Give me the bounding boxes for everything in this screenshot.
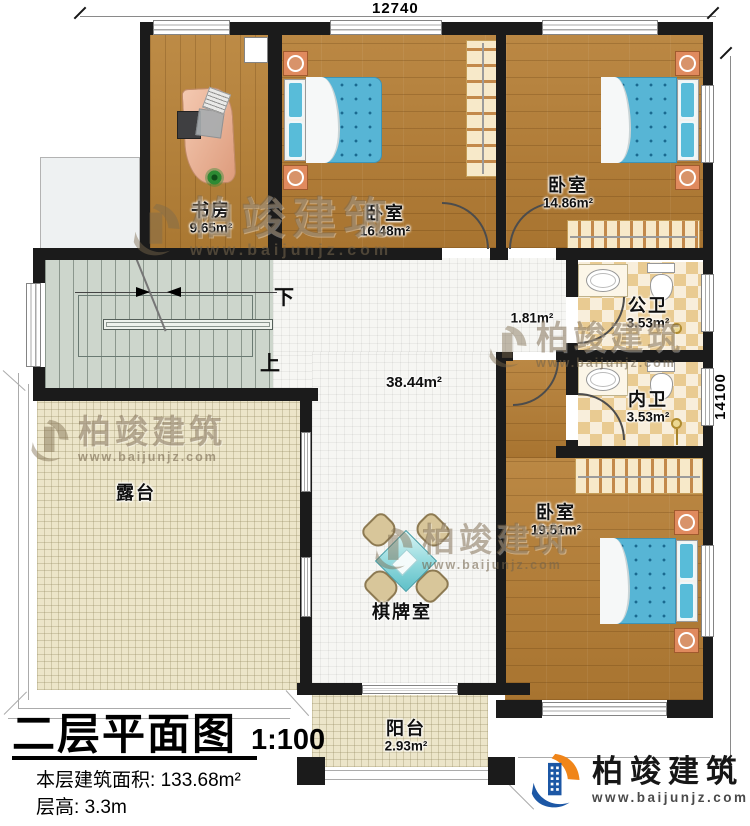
window bbox=[701, 274, 714, 332]
eave-line bbox=[18, 373, 19, 709]
floor-area-text: 本层建筑面积: 133.68m² bbox=[36, 765, 241, 792]
page-title: 二层平面图 bbox=[12, 711, 237, 759]
stair-rail bbox=[103, 319, 273, 330]
corridor-area-label: 1.81m² bbox=[511, 312, 554, 327]
stairs-up-label: 上 bbox=[260, 347, 280, 376]
title-block: 二层平面图1:100 bbox=[12, 700, 325, 762]
window bbox=[330, 20, 442, 35]
brand-url: www.baijunjz.com bbox=[592, 790, 749, 805]
bedroom3-wall bbox=[496, 700, 542, 718]
brand-name: 柏竣建筑 bbox=[592, 756, 749, 787]
wardrobe-icon bbox=[466, 40, 497, 177]
partition-wall bbox=[496, 35, 506, 248]
plant-icon bbox=[205, 168, 224, 187]
toilet-tank bbox=[647, 263, 675, 273]
balcony-parapet-line bbox=[325, 779, 488, 780]
nightstand-icon bbox=[675, 51, 700, 76]
lower-roof bbox=[40, 157, 140, 255]
bath-wall bbox=[556, 446, 712, 458]
sink-icon bbox=[586, 368, 620, 391]
drawing-scale: 1:100 bbox=[251, 724, 325, 756]
bedroom3-wall bbox=[496, 352, 506, 690]
nightstand-icon bbox=[674, 510, 699, 535]
wardrobe-icon bbox=[575, 458, 703, 494]
nightstand-icon bbox=[283, 51, 308, 76]
interior-wall bbox=[556, 248, 712, 260]
eave-line bbox=[3, 370, 26, 391]
floor-drain-icon bbox=[671, 323, 682, 334]
toilet-tank bbox=[647, 362, 675, 372]
interior-wall bbox=[33, 248, 442, 260]
stairwell-wall bbox=[33, 250, 45, 283]
terrace-wall bbox=[33, 388, 318, 401]
pillow-icon bbox=[287, 81, 304, 119]
exterior-wall-left bbox=[140, 22, 150, 258]
right-dimension-label: 14100 bbox=[712, 373, 729, 420]
pillow-icon bbox=[679, 121, 696, 159]
balcony-label: 阳台 2.93m² bbox=[385, 720, 428, 755]
nightstand-icon bbox=[283, 165, 308, 190]
floor-plan: 12740 14100 bbox=[0, 0, 750, 826]
interior-wall bbox=[490, 248, 508, 260]
dimension-tick bbox=[707, 7, 720, 20]
drain-stem bbox=[676, 429, 678, 445]
top-dimension-label: 12740 bbox=[372, 0, 419, 17]
window bbox=[542, 20, 658, 35]
study-label: 书房 9.65m² bbox=[190, 202, 233, 237]
brand-logo: 柏竣建筑 www.baijunjz.com bbox=[530, 750, 749, 810]
window bbox=[542, 702, 667, 716]
hall-floor bbox=[273, 258, 566, 352]
stair-arrow bbox=[167, 287, 181, 297]
window bbox=[153, 20, 230, 35]
game-room-floor bbox=[312, 352, 496, 683]
bath-wall bbox=[566, 258, 578, 297]
hall-area-label: 38.44m² bbox=[386, 375, 442, 392]
window bbox=[301, 557, 311, 617]
sink-icon bbox=[586, 269, 620, 292]
bedroom1-label: 卧室 16.48m² bbox=[360, 205, 410, 240]
floor-drain-icon bbox=[671, 418, 682, 429]
sliding-door bbox=[362, 685, 458, 694]
game-room-wall bbox=[297, 683, 362, 695]
brand-logo-icon bbox=[530, 750, 584, 810]
eave-line bbox=[28, 384, 29, 700]
study-door-niche bbox=[244, 37, 268, 63]
pillow-icon bbox=[287, 121, 304, 159]
bedroom3-wall bbox=[667, 700, 713, 718]
window bbox=[701, 368, 714, 426]
pillow-icon bbox=[679, 81, 696, 119]
game-room-label: 棋牌室 bbox=[372, 603, 432, 623]
partition-wall bbox=[268, 35, 282, 248]
terrace-label: 露台 bbox=[116, 484, 156, 504]
bedroom2-label: 卧室 14.86m² bbox=[543, 177, 593, 212]
bedroom3-label: 卧室 19.51m² bbox=[531, 504, 581, 539]
game-room-wall bbox=[458, 683, 530, 695]
title-underline bbox=[12, 756, 257, 760]
public-bath-label: 公卫 3.53m² bbox=[627, 297, 670, 332]
right-dimension-line bbox=[730, 56, 731, 768]
bedroom3-wall bbox=[558, 352, 578, 361]
balcony-pier bbox=[488, 757, 515, 785]
private-bath-label: 内卫 3.53m² bbox=[627, 391, 670, 426]
pillow-icon bbox=[678, 582, 695, 620]
nightstand-icon bbox=[675, 165, 700, 190]
window bbox=[301, 432, 311, 492]
stair-arrow bbox=[136, 287, 150, 297]
stairs-down-label: 下 bbox=[274, 281, 294, 310]
pillow-icon bbox=[678, 542, 695, 580]
floor-height-text: 层高: 3.3m bbox=[36, 792, 127, 819]
window bbox=[701, 85, 714, 163]
nightstand-icon bbox=[674, 628, 699, 653]
bath-wall bbox=[566, 362, 578, 395]
terrace-floor bbox=[37, 401, 300, 690]
window bbox=[701, 545, 714, 637]
dimension-tick bbox=[74, 7, 87, 20]
window bbox=[26, 283, 41, 367]
balcony-parapet-line bbox=[325, 770, 488, 771]
bath-divider-wall bbox=[556, 350, 712, 362]
